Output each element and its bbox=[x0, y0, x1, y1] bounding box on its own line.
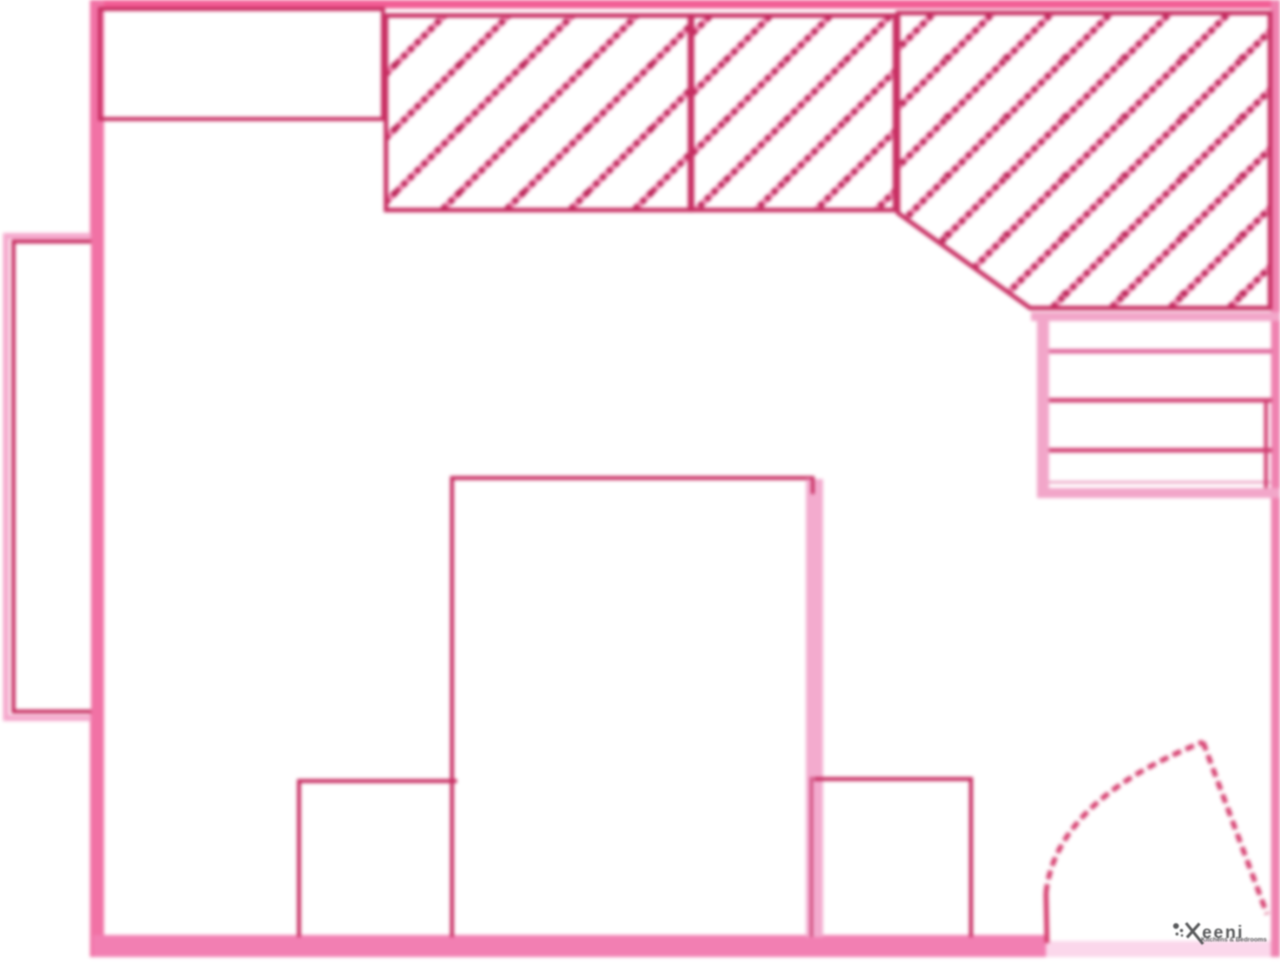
svg-text:Kitchens & Bedrooms: Kitchens & Bedrooms bbox=[1201, 937, 1267, 944]
